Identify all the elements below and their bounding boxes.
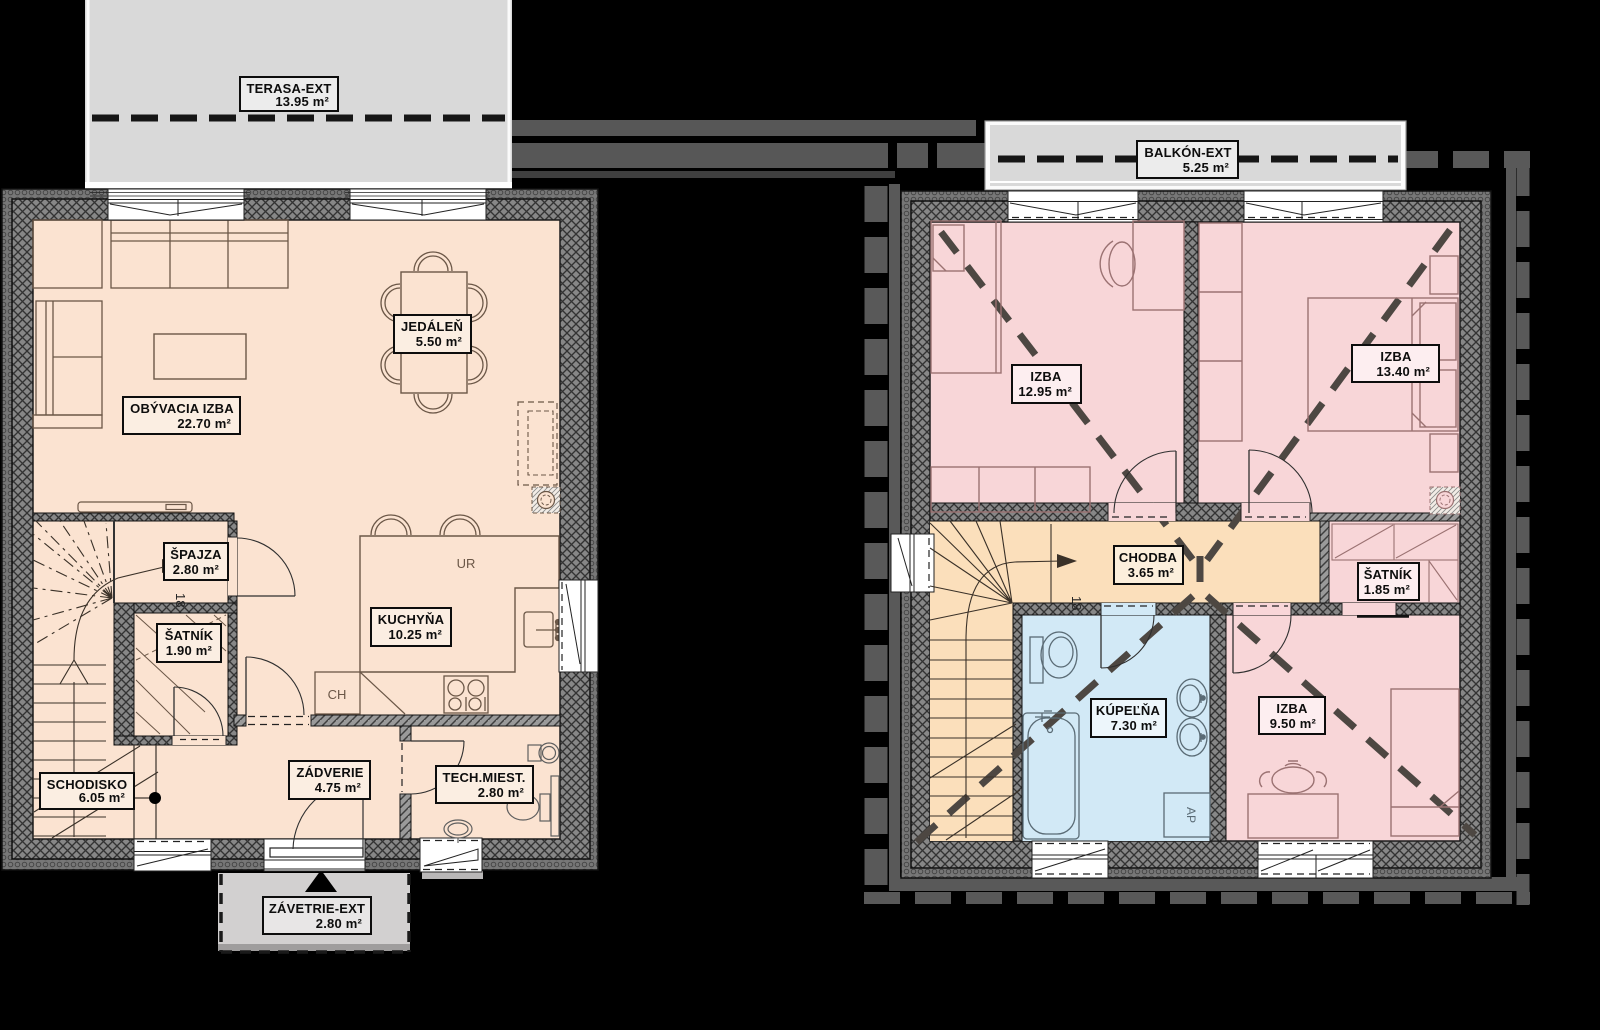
svg-text:JEDÁLEŇ: JEDÁLEŇ xyxy=(401,319,463,334)
svg-text:18: 18 xyxy=(173,593,188,607)
svg-text:18: 18 xyxy=(1069,596,1084,610)
svg-text:1.90 m²: 1.90 m² xyxy=(166,643,213,658)
svg-text:6.05 m²: 6.05 m² xyxy=(79,790,126,805)
svg-text:5.50 m²: 5.50 m² xyxy=(416,334,463,349)
svg-text:IZBA: IZBA xyxy=(1276,701,1308,716)
svg-text:2.80 m²: 2.80 m² xyxy=(478,785,525,800)
svg-text:KÚPEĽŇA: KÚPEĽŇA xyxy=(1096,703,1161,718)
svg-text:IZBA: IZBA xyxy=(1380,349,1412,364)
svg-text:9.50 m²: 9.50 m² xyxy=(1270,716,1317,731)
svg-text:IZBA: IZBA xyxy=(1030,369,1062,384)
svg-text:4.75 m²: 4.75 m² xyxy=(315,780,362,795)
svg-text:TECH.MIEST.: TECH.MIEST. xyxy=(442,770,525,785)
svg-text:ZÁVETRIE-EXT: ZÁVETRIE-EXT xyxy=(269,901,365,916)
svg-text:13.95 m²: 13.95 m² xyxy=(275,94,329,109)
svg-text:22.70 m²: 22.70 m² xyxy=(177,416,231,431)
svg-text:2.80 m²: 2.80 m² xyxy=(316,916,363,931)
svg-text:ZÁDVERIE: ZÁDVERIE xyxy=(296,765,363,780)
svg-text:KUCHYŇA: KUCHYŇA xyxy=(378,612,445,627)
svg-text:10.25 m²: 10.25 m² xyxy=(388,627,442,642)
svg-text:UR: UR xyxy=(457,556,476,571)
svg-text:OBÝVACIA IZBA: OBÝVACIA IZBA xyxy=(130,401,234,416)
svg-text:2.80 m²: 2.80 m² xyxy=(173,562,220,577)
svg-text:13.40 m²: 13.40 m² xyxy=(1376,364,1430,379)
svg-text:ŠATNÍK: ŠATNÍK xyxy=(165,628,214,643)
svg-text:1.85 m²: 1.85 m² xyxy=(1364,582,1411,597)
svg-text:CHODBA: CHODBA xyxy=(1119,550,1178,565)
svg-text:ŠPAJZA: ŠPAJZA xyxy=(170,547,222,562)
svg-text:BALKÓN-EXT: BALKÓN-EXT xyxy=(1144,145,1231,160)
svg-text:7.30 m²: 7.30 m² xyxy=(1111,718,1158,733)
svg-text:3.65 m²: 3.65 m² xyxy=(1128,565,1175,580)
svg-text:5.25 m²: 5.25 m² xyxy=(1183,160,1230,175)
svg-text:12.95 m²: 12.95 m² xyxy=(1018,384,1072,399)
svg-text:ŠATNÍK: ŠATNÍK xyxy=(1364,567,1413,582)
svg-text:CH: CH xyxy=(328,687,347,702)
svg-text:AP: AP xyxy=(1184,807,1198,823)
